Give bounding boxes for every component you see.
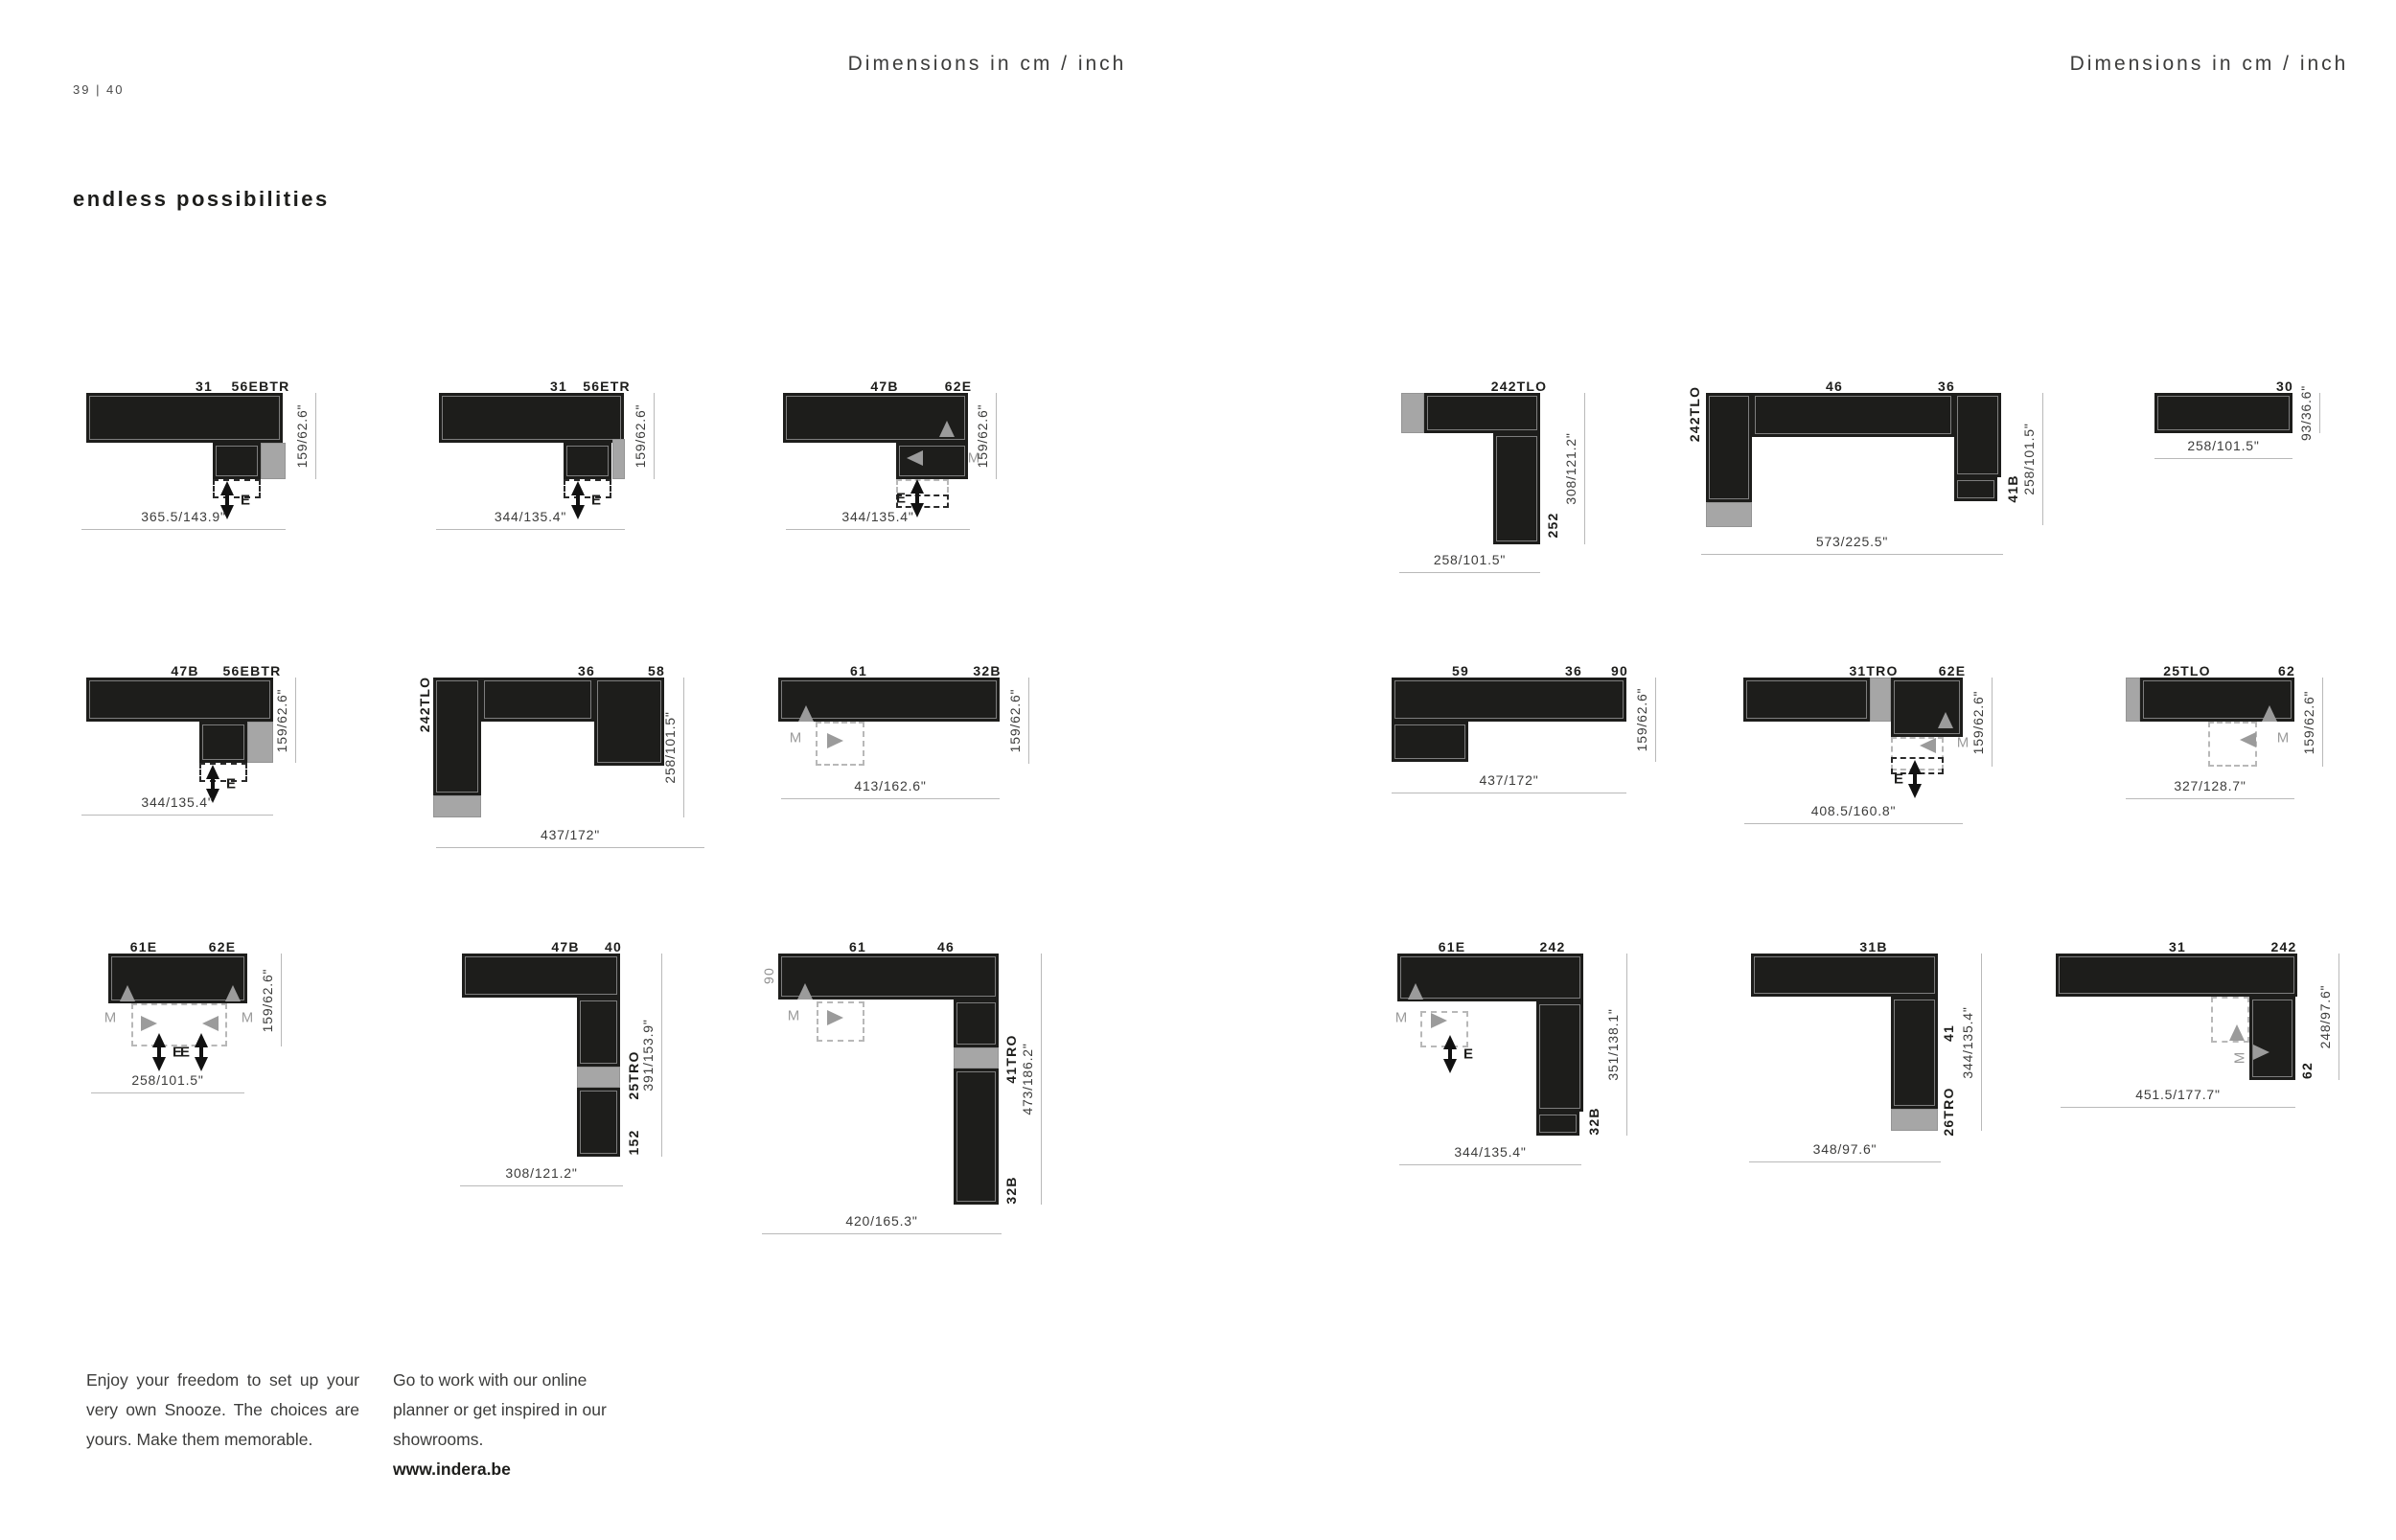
dimension-value: 159/62.6" [1970,690,1986,754]
footer-paragraph-planner: Go to work with our online planner or ge… [393,1366,647,1455]
footer-paragraph-planner-wrap: Go to work with our online planner or ge… [393,1366,647,1480]
extension-arrow-part [915,494,919,503]
dimension-value: 258/101.5" [2187,438,2259,453]
module-label: 26TRO [1941,1087,1956,1136]
sofa-module [1392,722,1468,762]
module-label: 47B [870,379,898,394]
module-label: 47B [551,939,579,954]
module-label: 152 [626,1130,641,1156]
dimension-line-vertical [1028,678,1029,764]
sofa-module [86,678,273,722]
motion-arrow-up-icon [798,705,814,722]
motion-label: M [1957,735,1970,751]
module-label: 31 [550,379,567,394]
dimension-value: 93/36.6" [2298,385,2314,441]
sofa-module [954,1000,999,1047]
sofa-module [2249,997,2295,1080]
dimension-line-vertical [2322,678,2323,767]
module-label: 62E [1939,663,1967,678]
dimension-value: 258/101.5" [131,1072,203,1088]
dimension-line-horizontal [1749,1161,1941,1162]
sofa-module [1706,393,1752,502]
website-link[interactable]: www.indera.be [393,1460,647,1480]
ottoman-module [2126,678,2140,722]
sofa-module [433,678,481,795]
module-label: 31B [1859,939,1887,954]
motion-arrow-right-icon [827,1010,843,1025]
motion-arrow-up-icon [225,985,241,1001]
module-label: 61E [1439,939,1466,954]
dimension-line-horizontal [436,529,625,530]
motion-arrow-up-icon [2262,705,2277,722]
module-label: 242 [1540,939,1566,954]
dimension-value: 344/135.4" [1454,1144,1526,1160]
dimension-value: 159/62.6" [274,688,289,752]
ottoman-module [1706,502,1752,527]
module-label: 58 [648,663,665,678]
extension-label: E [226,776,236,793]
extension-arrow-part [152,1057,166,1071]
extension-arrow-part [1908,784,1922,798]
sofa-module [577,1088,620,1157]
motion-arrow-left-icon [2240,732,2256,747]
extension-arrow-icon [152,1033,166,1071]
sofa-module [1424,393,1540,433]
extension-label: E [896,491,906,507]
sofa-module [1536,1112,1579,1136]
configuration-diagrams: 3156EBTRE159/62.6"365.5/143.9"3156ETRE15… [0,0,2396,1540]
extension-arrow-part [195,1057,208,1071]
catalog-spread: { "page": { "page_number": "39 | 40", "h… [0,0,2396,1540]
module-label: 242TLO [1491,379,1548,394]
dimension-line-vertical [315,393,316,479]
motion-arrow-up-icon [2229,1024,2245,1041]
dimension-value: 408.5/160.8" [1811,803,1897,818]
extension-arrow-part [220,481,234,495]
module-label: 32B [973,663,1001,678]
sofa-module [2056,954,2297,997]
module-label: 62 [2299,1062,2315,1079]
ottoman-module [261,443,286,479]
module-label: 32B [1003,1176,1019,1204]
dimension-value: 344/135.4" [141,794,213,810]
motion-arrow-left-icon [202,1016,219,1031]
sofa-module [213,443,261,479]
extension-label: E [180,1045,190,1061]
motion-arrow-up-icon [120,985,135,1001]
dimension-value: 437/172" [1480,772,1539,788]
dimension-value: 437/172" [541,827,600,842]
sofa-module [86,393,283,443]
ottoman-module [577,1067,620,1088]
module-label: 61E [130,939,158,954]
footer-paragraph-freedom: Enjoy your freedom to set up your very o… [86,1366,359,1455]
dimension-line-horizontal [1392,793,1626,793]
sofa-module [564,443,611,479]
extension-label: E [591,493,601,509]
dimension-line-horizontal [786,529,970,530]
module-label: 36 [1565,663,1582,678]
dimension-line-horizontal [436,847,704,848]
dimension-value: 573/225.5" [1816,534,1888,549]
module-label: 252 [1545,513,1560,539]
sofa-module [439,393,624,443]
extension-arrow-part [152,1033,166,1047]
sofa-module [1536,1001,1583,1112]
sofa-module [1752,393,1954,437]
module-label: 90 [1611,663,1628,678]
module-label: 61 [849,939,866,954]
dimension-value: 420/165.3" [845,1213,917,1229]
extension-arrow-icon [1908,760,1922,798]
dimension-line-horizontal [91,1092,244,1093]
dimension-line-horizontal [1744,823,1963,824]
dimension-value: 365.5/143.9" [141,509,226,524]
motion-label: M [1395,1010,1408,1026]
extension-arrow-part [157,1047,161,1057]
dimension-line-vertical [295,678,296,763]
extension-arrow-part [211,779,215,789]
dimension-value: 258/101.5" [1434,552,1506,567]
ottoman-module [1401,393,1424,433]
motion-arrow-left-icon [907,450,923,466]
motion-label: M [788,1008,800,1024]
dimension-value: 327/128.7" [2174,778,2246,793]
motion-arrow-up-icon [939,421,955,437]
dimension-value: 248/97.6" [2317,985,2333,1049]
dimension-value: 344/135.4" [495,509,566,524]
motion-label: M [2232,1052,2248,1065]
module-label: 56EBTR [232,379,290,394]
motion-arrow-right-icon [141,1016,157,1031]
module-label: 56ETR [583,379,631,394]
sofa-module [577,998,620,1067]
dimension-line-vertical [654,393,655,479]
sofa-module [1493,433,1540,544]
module-label: 47B [171,663,198,678]
dimension-value: 351/138.1" [1605,1008,1621,1080]
module-label: 90 [761,967,776,984]
module-label: 31TRO [1849,663,1898,678]
ottoman-module [1891,1109,1938,1131]
module-label: 61 [850,663,867,678]
extension-arrow-part [199,1047,203,1057]
dimension-line-horizontal [1701,554,2003,555]
sofa-module [954,1069,999,1205]
module-label: 62E [209,939,237,954]
module-label: 41 [1941,1024,1956,1042]
module-label: 46 [937,939,955,954]
sofa-module [1954,393,2001,477]
dimension-value: 344/135.4" [841,509,913,524]
extension-arrow-icon [195,1033,208,1071]
dimension-line-vertical [1626,954,1627,1136]
dimension-value: 451.5/177.7" [2135,1087,2221,1102]
dimension-line-horizontal [1399,572,1540,573]
dimension-line-vertical [1584,393,1585,544]
extension-arrow-icon [571,481,585,519]
dimension-line-horizontal [2061,1107,2295,1108]
sofa-module [594,678,664,766]
sofa-module [481,678,594,722]
dimension-line-horizontal [460,1185,623,1186]
dimension-value: 159/62.6" [975,404,990,469]
module-label: 62 [2278,663,2295,678]
motion-label: M [242,1010,254,1026]
dimension-line-vertical [1992,678,1993,767]
dimension-line-horizontal [762,1233,1002,1234]
dimension-value: 159/62.6" [294,404,310,469]
dimension-value: 348/97.6" [1813,1141,1878,1157]
dimension-line-horizontal [781,798,1000,799]
dimension-line-vertical [1655,678,1656,762]
extension-label: E [1894,771,1903,788]
module-label: 32B [1586,1107,1601,1135]
extension-arrow-part [1448,1049,1452,1059]
ottoman-module [1870,678,1891,722]
sofa-module [2154,393,2292,433]
module-label: 31 [196,379,213,394]
sofa-module [1397,954,1583,1001]
module-label: 62E [945,379,973,394]
extension-arrow-part [910,479,924,494]
ottoman-module [954,1047,999,1069]
module-label: 41B [2005,474,2020,502]
dimension-line-vertical [661,954,662,1157]
module-label: 36 [1938,379,1955,394]
sofa-module [1891,997,1938,1109]
extension-arrow-part [1443,1059,1457,1073]
ottoman-module [612,439,625,479]
dimension-line-horizontal [81,529,286,530]
dimension-line-horizontal [1399,1164,1581,1165]
extension-arrow-part [206,765,219,779]
module-label: 25TLO [2163,663,2211,678]
dimension-line-vertical [1041,954,1042,1205]
module-label: 242 [2271,939,2297,954]
dimension-line-vertical [2042,393,2043,525]
extension-arrow-part [1908,760,1922,774]
sofa-module [1751,954,1938,997]
motion-arrow-right-icon [2253,1045,2269,1060]
dimension-value: 159/62.6" [633,404,648,469]
extension-arrow-part [195,1033,208,1047]
dimension-value: 473/186.2" [1020,1043,1035,1115]
motion-arrow-right-icon [827,733,843,748]
module-label: 41TRO [1003,1034,1019,1083]
sofa-module [199,722,247,763]
module-label: 242TLO [417,677,432,733]
motion-label: M [790,730,802,747]
sofa-module [1743,678,1870,722]
module-label: 31 [2169,939,2186,954]
extension-label: E [1463,1046,1473,1063]
sofa-module [1954,477,1997,501]
dimension-value: 159/62.6" [1634,688,1649,752]
sofa-module [462,954,620,998]
ottoman-module [247,722,273,763]
dimension-value: 308/121.2" [1563,432,1578,504]
dimension-line-horizontal [2126,798,2294,799]
motion-arrow-up-icon [1408,983,1423,1000]
module-label: 56EBTR [223,663,282,678]
module-label: 30 [2276,379,2293,394]
extension-arrow-part [1913,774,1917,784]
dimension-value: 344/135.4" [1960,1006,1975,1078]
dimension-value: 159/62.6" [260,968,275,1032]
module-label: 46 [1826,379,1843,394]
extension-arrow-part [576,495,580,505]
dimension-line-vertical [2319,393,2320,433]
motion-arrow-up-icon [1938,712,1953,728]
extension-arrow-part [1443,1035,1457,1049]
ottoman-module [433,795,481,817]
extension-arrow-part [571,505,585,519]
dimension-value: 308/121.2" [505,1165,577,1181]
motion-arrow-left-icon [1920,738,1936,753]
dimension-line-horizontal [81,815,273,816]
motion-label: M [104,1010,117,1026]
dimension-line-vertical [281,954,282,1046]
module-label: 59 [1452,663,1469,678]
extension-arrow-part [225,495,229,505]
dimension-value: 413/162.6" [854,778,926,793]
module-label: 36 [578,663,595,678]
extension-arrow-part [571,481,585,495]
motion-arrow-up-icon [797,983,813,1000]
dimension-value: 159/62.6" [2301,690,2316,754]
extension-label: E [241,493,250,509]
dimension-line-vertical [683,678,684,817]
dimension-value: 391/153.9" [640,1019,656,1091]
dimension-line-vertical [1981,954,1982,1131]
dimension-value: 258/101.5" [2021,423,2037,494]
dimension-line-vertical [996,393,997,479]
motion-label: M [2277,730,2290,747]
dimension-value: 258/101.5" [662,711,678,783]
extension-arrow-icon [1443,1035,1457,1073]
module-label: 242TLO [1687,386,1702,443]
dimension-value: 159/62.6" [1007,689,1023,753]
sofa-module [1392,678,1626,722]
dimension-line-vertical [2338,954,2339,1080]
dimension-line-horizontal [2154,458,2292,459]
module-label: 40 [605,939,622,954]
module-label: 25TRO [626,1050,641,1099]
